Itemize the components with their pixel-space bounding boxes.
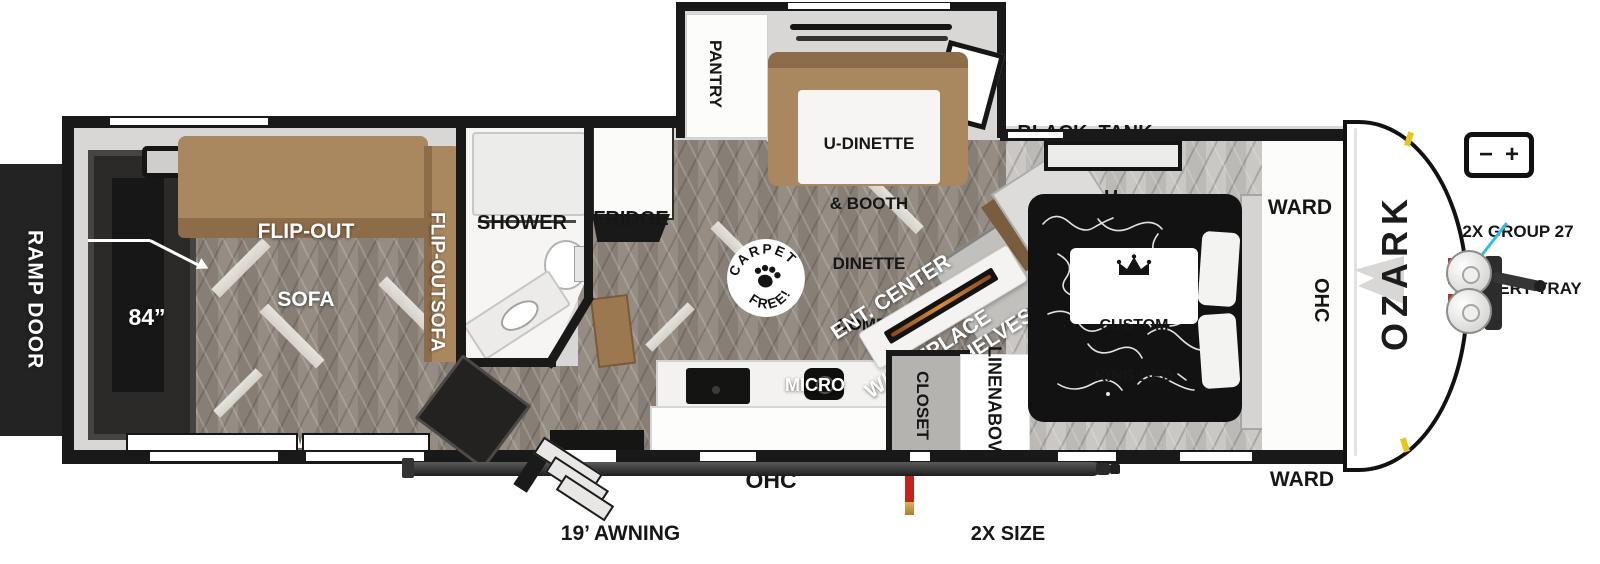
camp-fridge-label: 2X SIZE CAMP FRIDGE xyxy=(922,479,1094,564)
linen-above-label: LINEN ABOVE xyxy=(960,354,1028,456)
bottom-wall-slot xyxy=(150,452,278,461)
tongue-knob xyxy=(1534,280,1546,292)
awning-end-cap xyxy=(1096,463,1110,475)
awning-bracket xyxy=(402,458,414,478)
ward-bottom-label: WARD xyxy=(1258,424,1346,537)
closet-label: CLOSET xyxy=(892,356,952,454)
rear-wall xyxy=(62,116,74,464)
propane-tank xyxy=(1446,288,1492,334)
pantry-label: PANTRY xyxy=(700,18,730,130)
shower-label: SHOWER xyxy=(462,170,582,278)
battery-minus: − xyxy=(1479,142,1493,168)
front-top-window xyxy=(1008,132,1063,138)
bed-label: CUSTOM KING BED xyxy=(1070,282,1198,420)
lp-quick-connect-marker xyxy=(905,476,914,504)
cooktop-knob xyxy=(712,386,720,394)
brand-wrap: OZARK xyxy=(1375,177,1415,367)
ramp-door-label: RAMP DOOR xyxy=(0,164,68,436)
tank-valve xyxy=(1462,304,1480,322)
bath-right-wall xyxy=(584,126,593,300)
dimension-label: 84” xyxy=(112,255,182,379)
slide-window-frame xyxy=(790,24,952,30)
bottom-wall-slot xyxy=(910,452,930,461)
slide-window-frame xyxy=(796,36,948,41)
entry-threshold xyxy=(550,430,644,450)
lp-quick-connect-tip xyxy=(905,502,914,515)
awning-bar xyxy=(408,462,1100,476)
floorplan-diagram: RAMP DOOR FLIP-OUT SOFA FLIP-OUT SOFA 84… xyxy=(0,0,1600,564)
slide-window xyxy=(788,3,950,9)
bed-label-box: CUSTOM KING BED xyxy=(1070,248,1198,324)
flip-out-sofa-rear-label: FLIP-OUT SOFA xyxy=(226,176,386,357)
bottom-wall-slot xyxy=(700,452,756,461)
tank-valve xyxy=(1462,266,1480,284)
rear-top-window xyxy=(110,118,268,125)
bottom-wall-slot xyxy=(1180,452,1252,461)
battery-plus: + xyxy=(1505,142,1519,168)
bed-pillow xyxy=(1197,231,1240,307)
awning-knob xyxy=(1110,464,1120,474)
fridge-label: FRIDGE xyxy=(592,166,670,274)
dimension-leader-line xyxy=(88,239,150,242)
crown-icon xyxy=(1114,254,1154,278)
dinette-booth-back xyxy=(768,52,968,68)
bedroom-window xyxy=(1044,141,1182,171)
battery-icon: − + xyxy=(1464,132,1534,178)
bottom-wall-slot xyxy=(1058,452,1116,461)
cooktop xyxy=(686,368,750,404)
bed-pillow xyxy=(1197,313,1240,389)
awning-label: 19’ AWNING xyxy=(538,478,703,564)
